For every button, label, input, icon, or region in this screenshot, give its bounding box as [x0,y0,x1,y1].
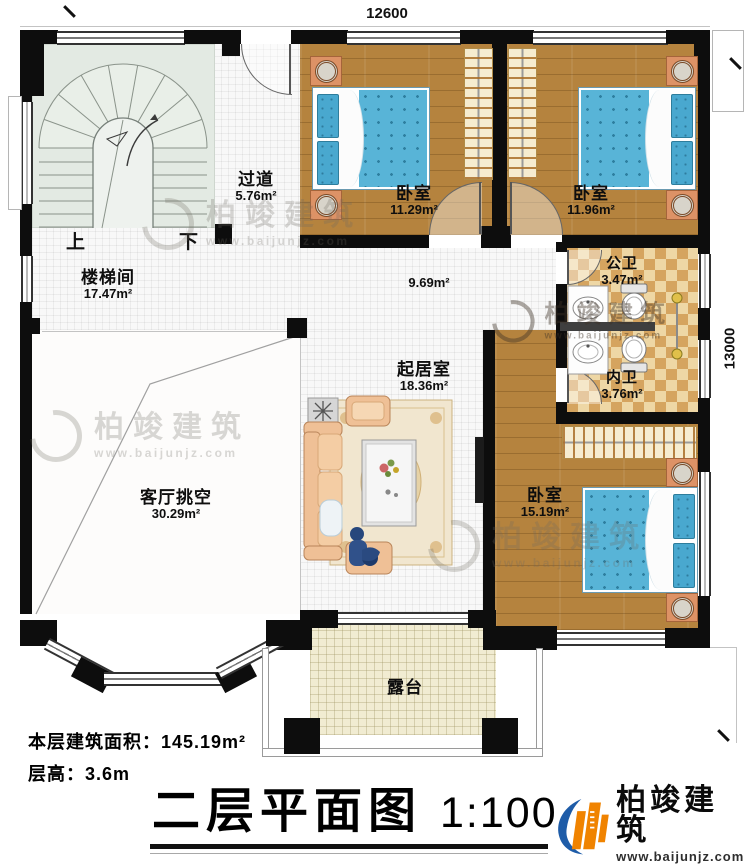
wardrobe [464,48,493,180]
window-sill-outline [8,96,22,210]
room-area: 9.69m² [408,276,449,291]
blanket [359,90,427,187]
pillow [317,94,339,138]
bed [578,87,696,190]
brand-website: www.baijunjz.com [616,849,750,864]
room-area: 3.76m² [601,387,642,402]
sheet-fold [645,90,670,187]
watermark: 柏竣建筑 www.baijunjz.com [30,410,250,462]
drawing-title-row: 二层平面图 1:100 [152,788,558,836]
door-leaf [479,182,481,234]
brand-block: 柏竣建筑 www.baijunjz.com [552,786,750,864]
wall-segment [481,226,511,248]
watermark-name: 柏竣建筑 [492,523,648,553]
drawing-title: 二层平面图 [152,788,422,836]
nightstand [666,458,698,487]
pillow [317,141,339,185]
window [21,102,33,204]
title-underline [150,844,548,849]
dimension-right: 13000 [722,319,739,379]
brand-name: 柏竣建筑 [616,786,750,846]
room-name: 楼梯间 [81,268,135,287]
room-name: 内卫 [601,370,642,387]
pillow [671,94,693,138]
dimension-top: 12600 [366,5,408,22]
room-area: 11.29m² [390,203,438,218]
bedroom-br-corridor-floor [495,330,556,424]
lamp-icon [671,194,694,217]
window [347,31,461,45]
floor-area-label: 本层建筑面积： [28,732,161,752]
room-name: 卧室 [390,184,438,203]
watermark: 柏竣建筑 www.baijunjz.com [492,300,672,343]
lamp-icon [671,462,694,485]
wall-segment [20,30,58,44]
lamp-icon [671,597,694,620]
window [57,31,185,45]
column [287,318,307,338]
wall-segment [483,626,557,650]
window [699,472,711,596]
bed [312,87,430,190]
watermark: 柏竣建筑 www.baijunjz.com [428,520,648,572]
room-label-terrace: 露台 [387,678,423,697]
watermark-name: 柏竣建筑 [94,413,250,443]
watermark-url: www.baijunjz.com [94,447,250,459]
terrace-column [482,718,518,754]
room-label-stair-hall: 楼梯间 17.47m² [81,268,135,302]
sheet-fold [645,490,672,590]
wall-segment [698,38,710,254]
dimension-line-top [20,26,710,27]
lamp-icon [671,60,694,83]
room-label-inner-bath: 内卫 3.76m² [601,370,642,401]
exterior-outline [710,647,737,648]
floor-height-value: 3.6m [85,764,130,784]
room-area: 30.29m² [140,507,212,522]
room-name: 客厅挑空 [140,488,212,507]
nightstand [666,593,698,622]
floor-plan-canvas: 过道 5.76m² 卧室 11.29m² 卧室 11.96m² 公卫 3.47m… [0,0,750,866]
room-area: 3.47m² [601,273,642,288]
bay-window-center [104,672,224,686]
floor-area-value: 145.19m² [161,732,246,752]
room-area: 11.96m² [567,203,615,218]
lamp-icon [315,60,338,83]
watermark-name: 柏竣建筑 [206,201,362,231]
floor-height-line: 层高：3.6m [28,760,130,786]
window [21,256,33,302]
room-name: 卧室 [521,486,569,505]
wardrobe [562,426,697,459]
title-underline-thin [150,853,548,854]
dimension-tick [717,729,730,742]
room-label-living: 起居室 18.36m² [397,360,451,394]
exterior-outline [736,647,737,743]
watermark-name: 柏竣建筑 [544,302,672,327]
watermark-url: www.baijunjz.com [492,557,648,569]
room-label-bedroom-tr: 卧室 11.96m² [567,184,615,218]
nightstand [310,56,342,86]
column [20,318,40,334]
void-diagonal-lines [32,332,300,616]
room-label-bedroom-br: 卧室 15.19m² [521,486,569,520]
terrace-column [284,718,320,754]
wardrobe [508,48,537,180]
wall-segment [665,628,710,648]
room-name: 起居室 [397,360,451,379]
watermark-logo-icon [132,188,205,261]
watermark-logo-icon [483,291,543,351]
watermark-logo-icon [418,510,491,583]
room-area: 15.19m² [521,505,569,520]
hallway-area-label: 9.69m² [408,276,449,291]
room-name: 露台 [387,678,423,697]
room-name: 卧室 [567,184,615,203]
stair-up-label: 上 [66,227,85,254]
drawing-scale: 1:100 [440,792,558,835]
window [557,632,665,646]
dimension-tick [63,5,76,18]
terrace-floor [310,613,496,735]
wall-segment [492,30,507,235]
bay-corner [266,620,302,646]
watermark-url: www.baijunjz.com [206,235,362,247]
watermark-url: www.baijunjz.com [544,330,672,340]
exterior-platform-outline [712,30,744,112]
blanket [581,90,649,187]
terrace-rail-right [536,648,543,754]
room-label-public-bath: 公卫 3.47m² [601,256,642,287]
nightstand [666,190,698,220]
room-area: 17.47m² [81,287,135,302]
room-label-void: 客厅挑空 30.29m² [140,488,212,522]
window [533,31,668,45]
watermark: 柏竣建筑 www.baijunjz.com [142,198,362,250]
floor-height-label: 层高： [28,764,85,784]
room-label-bedroom-tl: 卧室 11.29m² [390,184,438,218]
floor-area-line: 本层建筑面积：145.19m² [28,728,246,754]
room-name: 过道 [235,170,276,189]
door-leaf [289,44,291,94]
wall-segment [20,204,32,256]
room-area: 18.36m² [397,379,451,394]
door-leaf [510,182,512,234]
terrace-rail-left [262,648,269,754]
watermark-logo-icon [20,400,93,473]
nightstand [666,56,698,86]
terrace-sliding-door [338,612,468,625]
wall-segment [222,32,240,56]
tv [475,437,484,503]
wall-segment [291,30,348,44]
pillow [673,494,695,539]
brand-logo-icon [552,793,609,857]
pillow [671,141,693,185]
pillow [673,543,695,588]
room-name: 公卫 [601,256,642,273]
